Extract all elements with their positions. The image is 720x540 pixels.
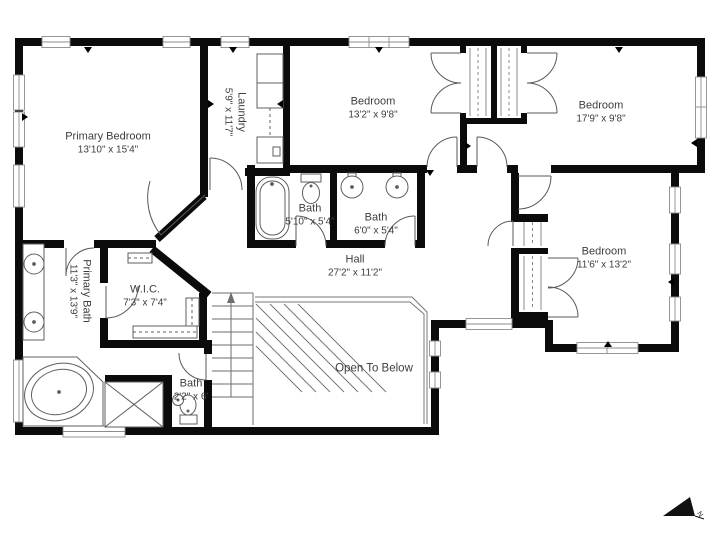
door-bath-small	[179, 353, 206, 380]
door-primary-bath	[66, 248, 94, 276]
sink	[173, 395, 184, 406]
door-closet-bedroom-right	[548, 258, 578, 317]
closet-rods	[470, 48, 541, 310]
door-hall-closet	[488, 221, 513, 246]
north-arrow-icon	[663, 497, 704, 519]
bathtub	[256, 177, 289, 239]
window	[14, 75, 707, 422]
floorplan-page: Primary Bedroom 13'10" x 15'4" Laundry 5…	[0, 0, 720, 540]
walls-layer	[15, 38, 705, 435]
laundry-appliances	[257, 54, 283, 163]
door-bedroom-top-middle	[427, 137, 457, 167]
door-bedroom-top-right	[477, 137, 507, 167]
floorplan-drawing	[0, 0, 720, 540]
shower	[105, 382, 163, 427]
diagonal-walls	[152, 196, 209, 295]
toilet	[301, 174, 321, 204]
door-bath-tub	[296, 216, 326, 246]
stairs	[212, 292, 253, 425]
corner-tub	[17, 355, 103, 430]
stairs-up-arrow	[227, 292, 235, 303]
sink	[341, 173, 408, 198]
door-bedroom-right	[518, 176, 551, 209]
open-to-below-railing	[255, 297, 427, 424]
door-laundry	[210, 158, 242, 190]
closet-shelving	[128, 253, 199, 338]
door-closet-right	[527, 53, 557, 113]
vanity	[23, 244, 44, 340]
door-bath-double	[385, 216, 415, 246]
door-closet-left	[431, 53, 461, 113]
door-wic	[106, 286, 138, 318]
